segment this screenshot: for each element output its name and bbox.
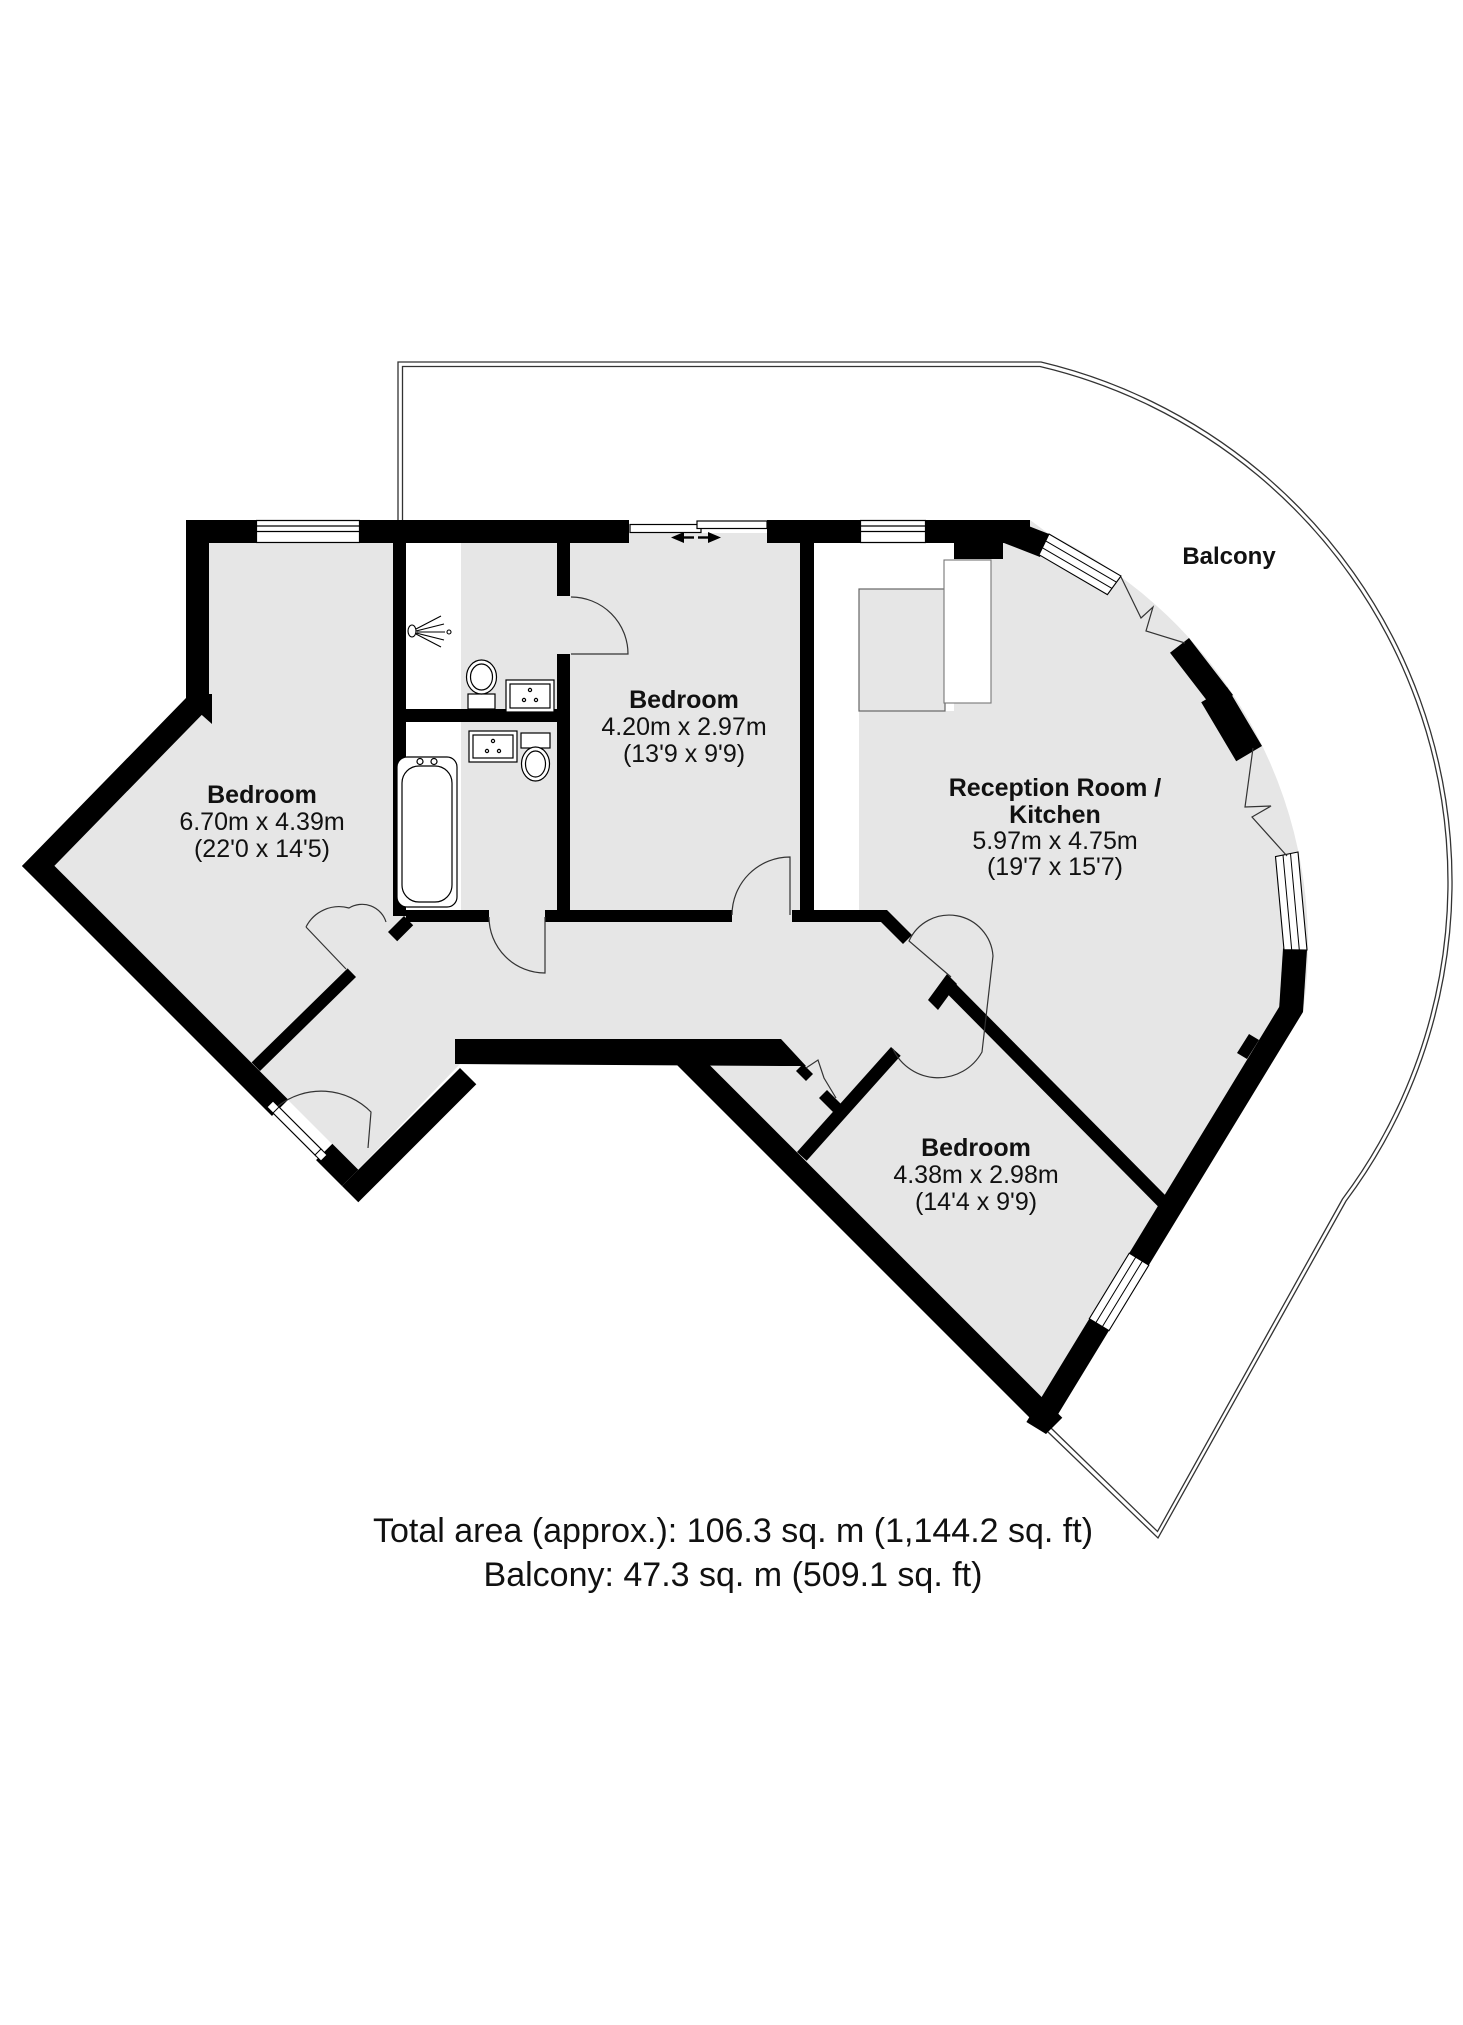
svg-text:Bedroom: Bedroom <box>629 686 739 714</box>
svg-text:(14'4 x 9'9): (14'4 x 9'9) <box>915 1188 1037 1216</box>
svg-text:(22'0 x 14'5): (22'0 x 14'5) <box>194 835 330 863</box>
svg-text:5.97m x 4.75m: 5.97m x 4.75m <box>972 827 1137 855</box>
svg-text:(19'7 x 15'7): (19'7 x 15'7) <box>987 853 1123 881</box>
svg-text:Balcony: 47.3 sq. m (509.1 sq.: Balcony: 47.3 sq. m (509.1 sq. ft) <box>484 1556 983 1594</box>
svg-text:Total area (approx.): 106.3 sq: Total area (approx.): 106.3 sq. m (1,144… <box>373 1512 1093 1550</box>
svg-text:Kitchen: Kitchen <box>1009 801 1101 829</box>
svg-text:Balcony: Balcony <box>1182 543 1276 570</box>
svg-text:Reception Room /: Reception Room / <box>949 774 1162 802</box>
svg-text:4.20m x 2.97m: 4.20m x 2.97m <box>601 713 766 741</box>
svg-text:Bedroom: Bedroom <box>921 1134 1031 1162</box>
svg-text:(13'9 x 9'9): (13'9 x 9'9) <box>623 740 745 768</box>
svg-text:Bedroom: Bedroom <box>207 781 317 809</box>
svg-text:4.38m x 2.98m: 4.38m x 2.98m <box>893 1161 1058 1189</box>
svg-text:6.70m x 4.39m: 6.70m x 4.39m <box>179 808 344 836</box>
